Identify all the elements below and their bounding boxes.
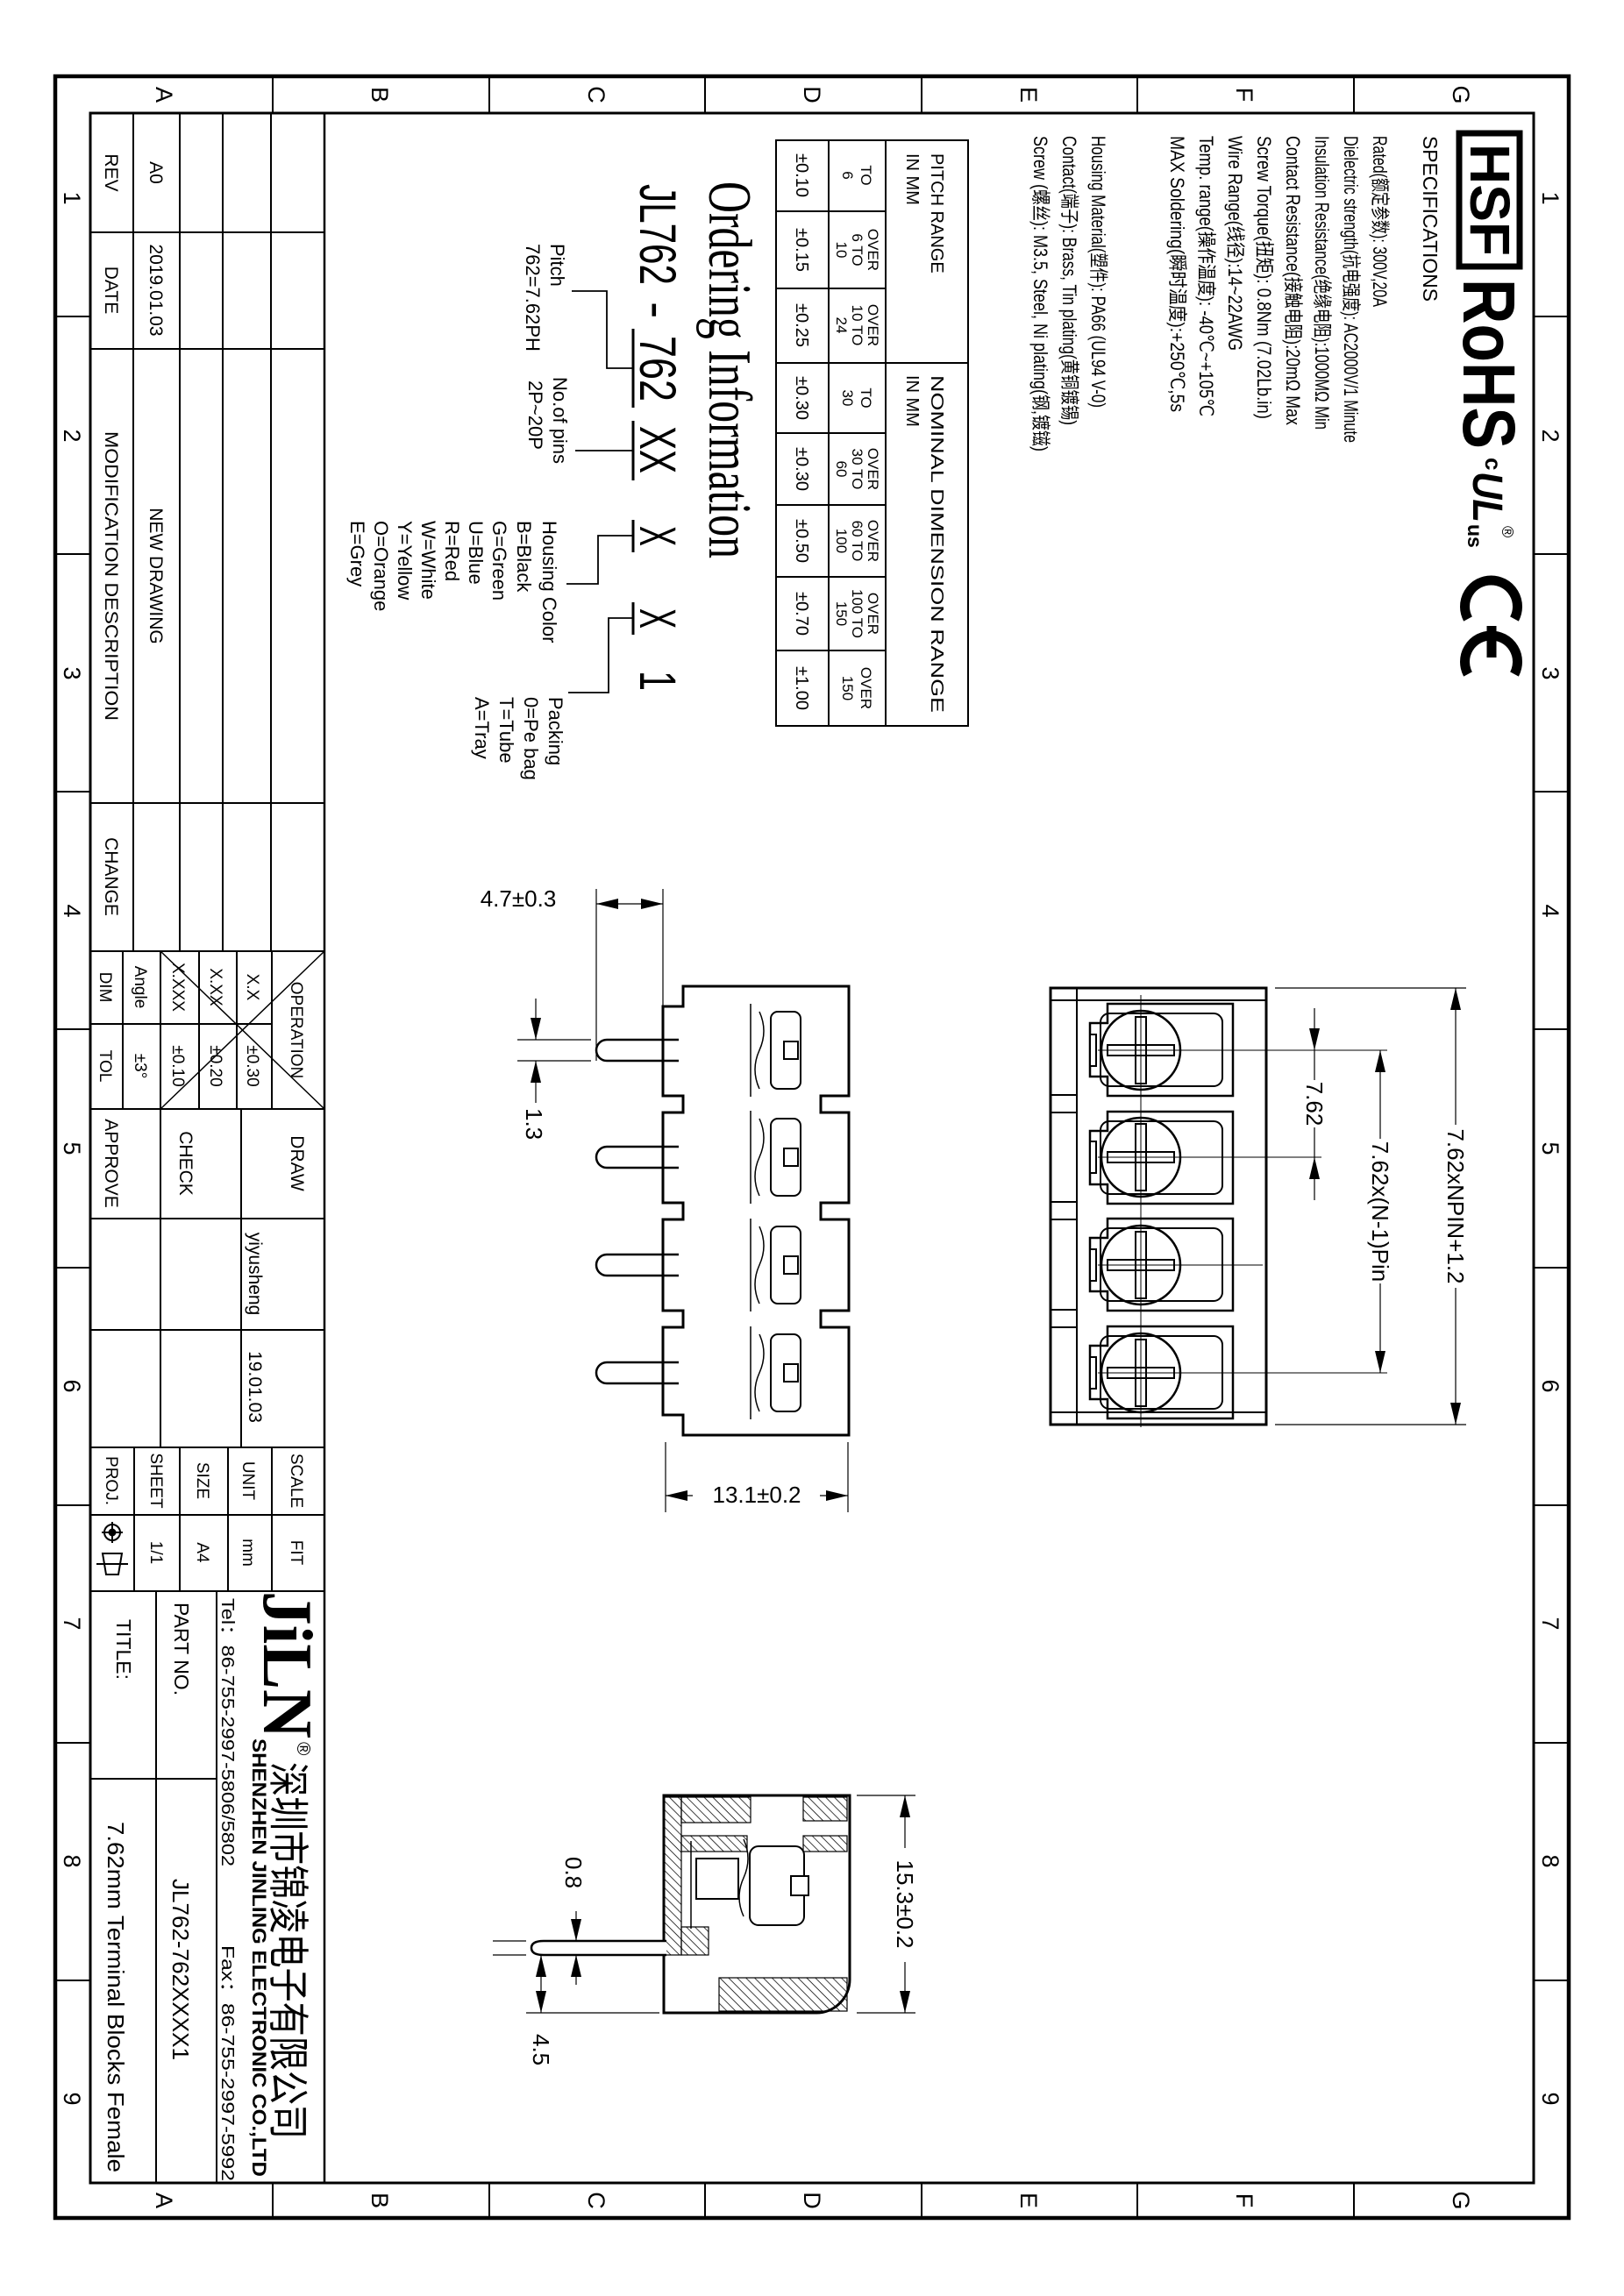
svg-text:A: A [151,87,177,103]
svg-text:B=Black: B=Black [513,521,535,593]
svg-text:Angle: Angle [131,966,149,1009]
svg-text:F: F [1231,88,1257,103]
svg-text:C: C [583,2192,609,2209]
svg-text:TO: TO [858,387,874,408]
svg-text:60: 60 [833,461,850,478]
svg-text:X.X: X.X [243,974,261,1001]
svg-text:6 TO: 6 TO [849,233,865,266]
svg-text:±3°: ±3° [131,1054,149,1079]
svg-text:c: c [1480,458,1506,470]
svg-text:T=Tube: T=Tube [495,697,517,764]
svg-text:B: B [367,87,393,103]
svg-text:W=White: W=White [417,521,439,600]
svg-text:yiyusheng: yiyusheng [245,1233,265,1316]
svg-text:CHANGE: CHANGE [101,837,121,916]
svg-text:SPECIFICATIONS: SPECIFICATIONS [1419,136,1442,302]
svg-text:13.1±0.2: 13.1±0.2 [712,1482,801,1508]
svg-text:3: 3 [59,666,85,679]
svg-text:4: 4 [1537,904,1563,917]
svg-text:OVER: OVER [865,593,881,635]
svg-text:5: 5 [1537,1141,1563,1155]
svg-text:±0.50: ±0.50 [792,519,811,563]
svg-text:60 TO: 60 TO [849,521,865,562]
svg-text:X: X [629,526,686,546]
svg-text:±0.10: ±0.10 [168,1045,187,1086]
svg-text:X.XXX: X.XXX [168,963,187,1012]
svg-text:X: X [629,608,686,629]
svg-text:No.of pins: No.of pins [549,377,571,464]
svg-text:100 TO: 100 TO [849,589,865,638]
svg-text:±0.30: ±0.30 [792,447,811,491]
svg-text:X.XX: X.XX [206,968,224,1006]
svg-text:PART NO.: PART NO. [170,1603,193,1695]
svg-text:Housing Color: Housing Color [538,521,560,643]
svg-text:100: 100 [833,529,850,553]
svg-text:0=Pe bag: 0=Pe bag [520,697,542,780]
svg-text:MAX Soldering(瞬时温度):+250℃,5s: MAX Soldering(瞬时温度):+250℃,5s [1166,136,1188,412]
svg-text:Fax：86-755-2997-5992: Fax：86-755-2997-5992 [217,1945,237,2181]
svg-text:8: 8 [59,1854,85,1867]
svg-text:Y=Yellow: Y=Yellow [394,521,416,600]
svg-text:1: 1 [1537,191,1563,204]
svg-text:JL762-762XXXX1: JL762-762XXXX1 [167,1879,194,2060]
svg-text:NEW DRAWING: NEW DRAWING [146,508,166,644]
svg-text:JiLN: JiLN [248,1591,325,1738]
svg-text:IN MM: IN MM [902,375,922,427]
svg-text:C: C [583,86,609,103]
svg-text:REV: REV [101,153,121,191]
svg-text:OVER: OVER [858,667,874,709]
svg-text:Tel：86-755-2997-5806/5802: Tel：86-755-2997-5806/5802 [217,1598,237,1866]
svg-text:DIM: DIM [96,972,114,1003]
svg-text:PITCH RANGE: PITCH RANGE [927,153,946,274]
svg-text:7.62mm Terminal Blocks Female: 7.62mm Terminal Blocks Female [103,1822,129,2172]
svg-text:OVER: OVER [865,229,881,271]
svg-text:1: 1 [629,671,686,691]
svg-text:762=7.62PH: 762=7.62PH [522,244,544,352]
svg-text:mm: mm [239,1539,257,1567]
svg-text:DATE: DATE [101,267,121,314]
svg-text:8: 8 [1537,1854,1563,1867]
svg-text:A4: A4 [193,1542,211,1563]
svg-text:30 TO: 30 TO [849,449,865,490]
svg-text:G: G [1448,85,1474,103]
svg-text:±0.25: ±0.25 [792,303,811,347]
svg-text:E: E [1015,2193,1042,2208]
svg-text:7: 7 [1537,1617,1563,1630]
svg-text:10: 10 [833,242,850,259]
svg-text:2: 2 [1537,429,1563,442]
svg-text:762: 762 [629,336,686,402]
svg-text:7.62x(N-1)Pin: 7.62x(N-1)Pin [1367,1141,1393,1282]
svg-text:MODIFICATION DESCRIPTION: MODIFICATION DESCRIPTION [101,431,121,721]
svg-text:DRAW: DRAW [287,1135,307,1191]
svg-text:HSF: HSF [1458,144,1521,256]
svg-text:2019.01.03: 2019.01.03 [146,244,166,336]
svg-text:1: 1 [59,191,85,204]
svg-text:±0.70: ±0.70 [792,592,811,636]
svg-text:150: 150 [833,601,850,626]
svg-text:OVER: OVER [865,448,881,490]
svg-text:9: 9 [1537,2092,1563,2105]
svg-text:9: 9 [59,2092,85,2105]
svg-text:®: ® [1499,526,1516,537]
svg-text:Screw Torque(扭矩): 0.8Nm (7.02L: Screw Torque(扭矩): 0.8Nm (7.02Lb.in) [1253,136,1275,419]
svg-text:FIT: FIT [287,1540,305,1566]
svg-text:2P~20P: 2P~20P [524,380,546,450]
svg-text:RoHS: RoHS [1448,279,1530,449]
svg-text:TO: TO [858,165,874,185]
svg-text:OVER: OVER [865,520,881,562]
svg-text:Contact(端子): Brass, Tin platin: Contact(端子): Brass, Tin plating(黄铜镀锡) [1058,136,1080,425]
svg-text:E: E [1015,87,1042,103]
svg-text:Housing Material(塑件): PA66 (UL: Housing Material(塑件): PA66 (UL94 V-0) [1087,136,1109,408]
svg-text:Pitch: Pitch [546,244,568,287]
svg-text:6: 6 [1537,1379,1563,1392]
svg-text:us: us [1464,524,1486,548]
svg-text:Screw (螺丝): M3.5, Steel, Ni pl: Screw (螺丝): M3.5, Steel, Ni plating(钢,镀镃… [1029,136,1051,451]
svg-text:6: 6 [59,1379,85,1392]
svg-text:SHENZHEN JINLING ELECTRONIC CO: SHENZHEN JINLING ELECTRONIC CO.,LTD [248,1738,270,2177]
svg-text:F: F [1231,2193,1257,2208]
svg-text:2: 2 [59,429,85,442]
svg-text:7: 7 [59,1617,85,1630]
svg-text:B: B [367,2193,393,2208]
svg-text:IN MM: IN MM [902,153,922,205]
svg-text:Contact Resistance(接触电阻):20mΩ: Contact Resistance(接触电阻):20mΩ Max [1282,136,1304,425]
svg-text:24: 24 [833,317,850,334]
svg-text:TITLE:: TITLE: [112,1619,135,1680]
svg-text:O=Orange: O=Orange [370,521,392,611]
svg-text:SIZE: SIZE [193,1462,211,1499]
svg-text:Temp. range(操作温度): -40℃~+105℃: Temp. range(操作温度): -40℃~+105℃ [1195,136,1217,416]
svg-text:Ordering Information: Ordering Information [695,181,763,558]
svg-text:APPROVE: APPROVE [101,1119,121,1208]
svg-text:7.62: 7.62 [1301,1082,1328,1127]
svg-text:±0.10: ±0.10 [792,153,811,197]
svg-text:5: 5 [59,1141,85,1155]
svg-text:®: ® [293,1742,313,1756]
svg-text:D: D [799,86,825,103]
svg-text:SHEET: SHEET [146,1453,165,1509]
svg-text:PROJ.: PROJ. [102,1456,120,1505]
svg-text:0.8: 0.8 [560,1857,587,1888]
svg-text:1.3: 1.3 [521,1108,547,1140]
svg-text:Packing: Packing [545,697,566,765]
svg-text:±0.30: ±0.30 [243,1045,261,1086]
svg-text:±0.30: ±0.30 [792,376,811,420]
svg-text:15.3±0.2: 15.3±0.2 [892,1859,918,1948]
svg-text:-: - [629,302,686,318]
svg-text:4: 4 [59,904,85,917]
svg-text:深圳市锦凌电子有限公司: 深圳市锦凌电子有限公司 [265,1762,311,2139]
svg-text:U=Blue: U=Blue [465,521,487,585]
svg-text:Insulation Resistance(绝缘电阻):10: Insulation Resistance(绝缘电阻):1000MΩ Min [1311,136,1333,430]
svg-text:E=Grey: E=Grey [346,521,368,586]
svg-text:±1.00: ±1.00 [792,666,811,710]
svg-text:4.7±0.3: 4.7±0.3 [481,885,557,912]
svg-text:±0.20: ±0.20 [206,1045,224,1086]
svg-text:NOMINAL DIMENSION RANGE: NOMINAL DIMENSION RANGE [927,375,946,713]
svg-text:6: 6 [839,171,856,179]
svg-text:D: D [799,2192,825,2209]
svg-text:JL762: JL762 [629,184,686,285]
svg-text:1/1: 1/1 [146,1541,165,1564]
svg-text:7.62xNPIN+1.2: 7.62xNPIN+1.2 [1442,1128,1469,1283]
svg-text:Dielectric strength(抗电强度): AC2: Dielectric strength(抗电强度): AC2000V/1 Min… [1340,136,1362,443]
svg-text:30: 30 [839,390,856,407]
svg-text:CHECK: CHECK [175,1131,196,1196]
svg-text:A=Tray: A=Tray [471,697,493,759]
svg-text:A0: A0 [146,161,166,184]
svg-text:XX: XX [629,426,686,473]
svg-text:3: 3 [1537,666,1563,679]
svg-text:G: G [1448,2191,1474,2209]
svg-text:Rated(额定参数): 300V,20A: Rated(额定参数): 300V,20A [1369,136,1391,307]
svg-text:19.01.03: 19.01.03 [245,1351,265,1423]
svg-text:UL: UL [1464,472,1510,522]
svg-text:4.5: 4.5 [528,2034,554,2065]
svg-text:UNIT: UNIT [239,1461,257,1501]
svg-text:±0.15: ±0.15 [792,228,811,272]
svg-text:10 TO: 10 TO [849,305,865,346]
svg-text:A: A [151,2193,177,2208]
svg-text:G=Green: G=Green [488,521,510,601]
svg-text:Wire Range(线径):14~22AWG: Wire Range(线径):14~22AWG [1224,136,1246,351]
svg-text:150: 150 [839,676,856,700]
svg-text:SCALE: SCALE [287,1454,305,1508]
svg-text:OVER: OVER [865,304,881,346]
svg-text:TOL: TOL [96,1050,114,1083]
svg-text:OPERATION: OPERATION [287,982,305,1079]
svg-text:R=Red: R=Red [441,521,463,581]
